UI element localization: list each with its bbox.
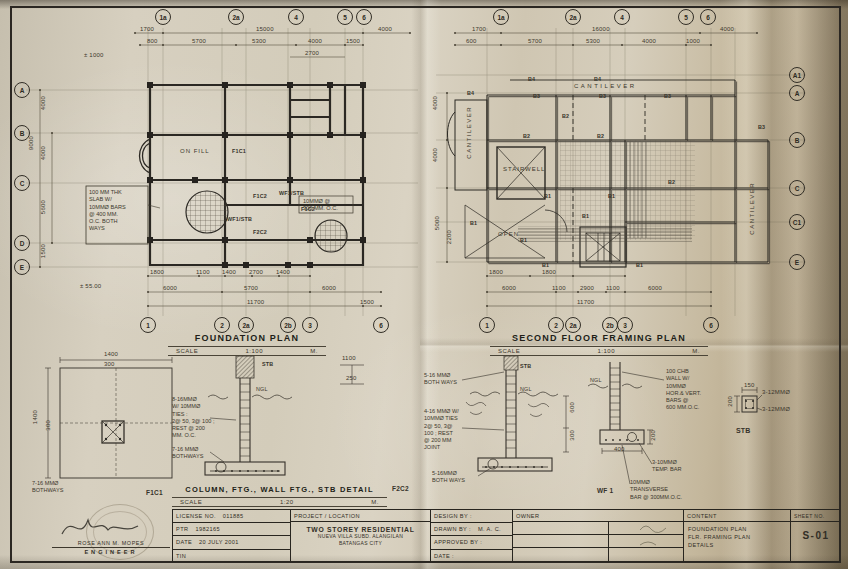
dim-label: 1800 — [489, 269, 503, 275]
dim-label: 1800 — [150, 269, 164, 275]
content-header: CONTENT — [684, 510, 790, 522]
dim-label: 800 — [147, 38, 158, 44]
dim-label: 6000 — [322, 285, 336, 291]
tin-label: TIN — [176, 553, 186, 559]
engineer-name: ROSE ANN M. MOPES — [52, 540, 170, 548]
beam-tag: B2 — [597, 133, 604, 139]
grid-bubble: 3 — [302, 317, 318, 333]
foundation-plan-title: FOUNDATION PLAN — [168, 333, 326, 343]
dim-label: 1500 — [346, 38, 360, 44]
dim-label: 1400 — [32, 410, 38, 424]
framing-plan-title: SECOND FLOOR FRAMING PLAN — [490, 333, 708, 343]
dim-label: 250 — [346, 375, 357, 381]
grid-bubble: 2b — [280, 317, 296, 333]
details-title-tag: F2C2 — [392, 485, 409, 492]
dim-label: 300 — [569, 430, 575, 441]
approved-by-label: APPROVED BY : — [434, 539, 482, 545]
on-fill-label: ON FILL — [180, 148, 210, 154]
content-body: FOUNDATION PLAN FLR. FRAMING PLAN DETAIL… — [684, 522, 790, 552]
project-name: TWO STOREY RESIDENTIAL — [291, 526, 430, 533]
beam-tag: B1 — [582, 213, 589, 219]
dim-label: 4000 — [378, 26, 392, 32]
dim-label: 5700 — [244, 285, 258, 291]
footing-tag: WF1/STB — [279, 190, 304, 196]
project-location: NUEVA VILLA SUBD. ALANGILAN BATANGAS CIT… — [291, 533, 430, 547]
scale-unit: M. — [310, 348, 318, 354]
footing-tag: F1C2 — [253, 193, 267, 199]
stairwell-label: STAIRWELL — [503, 166, 545, 172]
dim-label: 11700 — [577, 299, 594, 305]
scale-value: 1:100 — [598, 348, 616, 354]
wf1-label: WF 1 — [597, 487, 613, 494]
ngl-label: NGL — [256, 386, 268, 392]
cantilever-label: CANTILEVER — [466, 106, 472, 159]
grid-bubble: 5 — [678, 9, 694, 25]
dim-label: 1400 — [104, 351, 118, 357]
sheet-number: S-01 — [791, 530, 841, 541]
owner-column: OWNER — [513, 510, 684, 561]
license-column: LICENSE NO.011885 PTR1982165 DATE20 JULY… — [173, 510, 291, 561]
cantilever-label: CANTILEVER — [749, 182, 755, 235]
dim-label: 4000 — [432, 96, 438, 110]
dim-label: 5300 — [252, 38, 266, 44]
dim-label: 1100 — [552, 285, 566, 291]
grid-bubble: 2a — [565, 317, 581, 333]
license-value: 011885 — [223, 513, 244, 519]
date-value: 20 JULY 2001 — [199, 539, 239, 545]
temp-bar-note: 3-10MMØ TEMP. BAR — [652, 459, 694, 474]
grid-bubble: 1 — [140, 317, 156, 333]
rebar-label: 3-12MMØ — [762, 406, 790, 412]
grid-bubble: 2b — [602, 317, 618, 333]
dim-label: 5000 — [434, 216, 440, 230]
transverse-bar-note: 10MMØ TRANSVERSE BAR @ 300MM.O.C. — [630, 479, 692, 501]
dim-label: 11700 — [247, 299, 264, 305]
grid-bubble: A1 — [789, 67, 805, 83]
beam-tag: B1 — [636, 262, 643, 268]
details-scale: SCALE 1:20 M. — [172, 497, 387, 507]
dim-label: 1100 — [606, 285, 620, 291]
grid-bubble: D — [14, 235, 30, 251]
grid-bubble: 6 — [700, 9, 716, 25]
grid-bubble: 3 — [617, 317, 633, 333]
dim-label: 2900 — [580, 285, 594, 291]
dim-label: 150 — [744, 382, 755, 388]
wall-bothways-note: 5-16 MMØ BOTH WAYS — [424, 372, 468, 387]
open-label: OPEN — [498, 231, 519, 237]
dim-label: 2700 — [305, 50, 319, 56]
footing-tag: F2C2 — [253, 229, 267, 235]
title-block: LICENSE NO.011885 PTR1982165 DATE20 JULY… — [172, 509, 840, 562]
dim-label: 5600 — [40, 200, 46, 214]
beam-tag: B4 — [528, 76, 535, 82]
ngl-label: NGL — [590, 377, 602, 383]
beam-tag: B3 — [533, 93, 540, 99]
cantilever-label: CANTILEVER — [574, 83, 637, 89]
beam-tag: B1 — [544, 193, 551, 199]
framing-plan-scale: SCALE 1:100 M. — [490, 346, 708, 356]
scale-label: SCALE — [176, 348, 198, 354]
grid-bubble: 5 — [337, 9, 353, 25]
wall-bothways-note: 5-16MMØ BOTH WAYS — [432, 470, 476, 485]
dim-label: 1100 — [342, 355, 356, 361]
sheet-header: SHEET NO. — [791, 510, 841, 522]
dim-label: 6000 — [502, 285, 516, 291]
bothways-note: 7-16 MMØ BOTHWAYS — [172, 446, 216, 461]
grid-bubble: 1a — [493, 9, 509, 25]
detail-label-f1c1: F1C1 — [146, 489, 163, 496]
project-header: PROJECT / LOCATION — [291, 510, 430, 522]
dim-label: 4000 — [432, 148, 438, 162]
design-by-label: DESIGN BY : — [434, 513, 472, 519]
dim-label: 1100 — [196, 269, 210, 275]
grid-bubble: 2a — [238, 317, 254, 333]
scale-unit: M. — [692, 348, 700, 354]
footing-tag: F1C1 — [232, 148, 246, 154]
beam-tag: B3 — [599, 93, 606, 99]
dim-label: 1400 — [276, 269, 290, 275]
beam-tag: B2 — [523, 133, 530, 139]
footing-tag: F1C2 — [301, 206, 315, 212]
engineer-title: ENGINEER — [52, 549, 170, 555]
project-column: PROJECT / LOCATION TWO STOREY RESIDENTIA… — [291, 510, 431, 561]
owner-header: OWNER — [513, 510, 683, 522]
chb-wall-note: 100 CHB WALL W/ 10MMØ HOR.& VERT. BARS @… — [666, 368, 712, 412]
grid-bubble: 1a — [155, 9, 171, 25]
beam-tag: B3 — [664, 93, 671, 99]
dim-label: 1700 — [472, 26, 486, 32]
grid-bubble: 1 — [479, 317, 495, 333]
dim-label: 5700 — [192, 38, 206, 44]
dim-label: 4000 — [720, 26, 734, 32]
grid-bubble: E — [789, 254, 805, 270]
grid-bubble: 6 — [356, 9, 372, 25]
grid-bubble: A — [789, 85, 805, 101]
dim-label: 400 — [614, 446, 625, 452]
dim-label: 4000 — [40, 146, 46, 160]
dim-label: 600 — [466, 38, 477, 44]
dim-label: 1000 — [686, 38, 700, 44]
ngl-label: NGL — [520, 386, 532, 392]
beam-tag: B2 — [668, 179, 675, 185]
dim-label: 4000 — [642, 38, 656, 44]
footing-tag: WF1/STB — [227, 216, 252, 222]
grid-bubble: 4 — [614, 9, 630, 25]
dim-label: 2200 — [446, 230, 452, 244]
dim-label: 300 — [104, 361, 115, 367]
dim-label: 1500 — [40, 244, 46, 258]
grid-bubble: C — [789, 180, 805, 196]
bothways-note: 7-16 MMØ BOTHWAYS — [32, 480, 76, 495]
date-by-label: DATE : — [434, 553, 454, 559]
column-rebar-note: 8-16MMØ W/ 10MMØ TIES : 2@ 50, 3@ 100 ; … — [172, 396, 222, 440]
dim-label: 200 — [650, 430, 656, 441]
wall-rebar-note: 4-16 MMØ W/ 10MMØ TIES 2@ 50, 3@ 100 ; R… — [424, 408, 470, 452]
dim-label: 5300 — [586, 38, 600, 44]
benchmark-label: ± 55.00 — [80, 283, 101, 289]
signatories-column: DESIGN BY : DRAWN BY :M. A. C. APPROVED … — [431, 510, 513, 561]
drawn-by-label: DRAWN BY : — [434, 526, 471, 532]
beam-tag: B1 — [470, 220, 477, 226]
dim-label: 16000 — [592, 26, 610, 32]
ptr-label: PTR — [176, 526, 188, 532]
grid-bubble: C — [14, 175, 30, 191]
beam-tag: B3 — [758, 124, 765, 130]
dim-label: 4000 — [40, 96, 46, 110]
foundation-plan-scale: SCALE 1:100 M. — [168, 346, 326, 356]
scale-label: SCALE — [498, 348, 520, 354]
grid-bubble: 2a — [228, 9, 244, 25]
blueprint-sheet: 1a 2a 4 5 6 1 2 2a 2b 3 6 A B C D E 1a 2… — [0, 0, 848, 569]
scale-value: 1:100 — [246, 348, 264, 354]
dim-label: 15000 — [256, 26, 274, 32]
grid-bubble: 2 — [214, 317, 230, 333]
dim-label: 6000 — [163, 285, 177, 291]
stb-label: STB — [262, 361, 273, 367]
dim-label: 4000 — [308, 38, 322, 44]
dim-label: 300 — [45, 420, 51, 431]
rebar-label: 3-12MMØ — [762, 389, 790, 395]
details-title: COLUMN, FTG., WALL FTG., STB DETAIL — [172, 485, 387, 494]
stb-detail-label: STB — [736, 427, 751, 434]
dim-label: 200 — [727, 396, 733, 407]
stb-label: STB — [520, 363, 531, 369]
beam-tag: B4 — [594, 76, 601, 82]
grid-bubble: E — [14, 259, 30, 275]
slab-note: 100 MM THK SLAB W/ 10MMØ BARS @ 400 MM. … — [89, 189, 147, 233]
scale-value: 1:20 — [280, 499, 294, 505]
dim-label: 5700 — [528, 38, 542, 44]
dim-label: 600 — [569, 402, 575, 413]
dim-label: 1400 — [222, 269, 236, 275]
grid-bubble: A — [14, 82, 30, 98]
dim-label: 9000 — [28, 136, 34, 150]
dim-label: 1500 — [360, 299, 374, 305]
grid-bubble: 2a — [565, 9, 581, 25]
dim-label: 1700 — [140, 26, 154, 32]
beam-tag: B1 — [608, 193, 615, 199]
date-label: DATE — [176, 539, 192, 545]
sheet-column: SHEET NO. S-01 — [791, 510, 841, 561]
beam-tag: B2 — [562, 113, 569, 119]
grid-bubble: 2 — [548, 317, 564, 333]
scale-label: SCALE — [180, 499, 202, 505]
line-drawing — [0, 0, 848, 569]
grid-bubble: 6 — [703, 317, 719, 333]
scale-unit: M. — [371, 499, 379, 505]
grid-bubble: 4 — [288, 9, 304, 25]
drawn-by-value: M. A. C. — [478, 526, 501, 532]
beam-tag: B1 — [542, 262, 549, 268]
grid-bubble: 6 — [373, 317, 389, 333]
dim-label: 6000 — [648, 285, 662, 291]
dim-label: 2700 — [249, 269, 263, 275]
license-label: LICENSE NO. — [176, 513, 216, 519]
grid-bubble: B — [789, 132, 805, 148]
beam-tag: B1 — [520, 237, 527, 243]
benchmark-label: ± 1000 — [84, 52, 104, 58]
grid-bubble: C1 — [789, 214, 805, 230]
beam-tag: B4 — [467, 90, 474, 96]
ptr-value: 1982165 — [195, 526, 220, 532]
content-column: CONTENT FOUNDATION PLAN FLR. FRAMING PLA… — [684, 510, 791, 561]
dim-label: 1800 — [542, 269, 556, 275]
